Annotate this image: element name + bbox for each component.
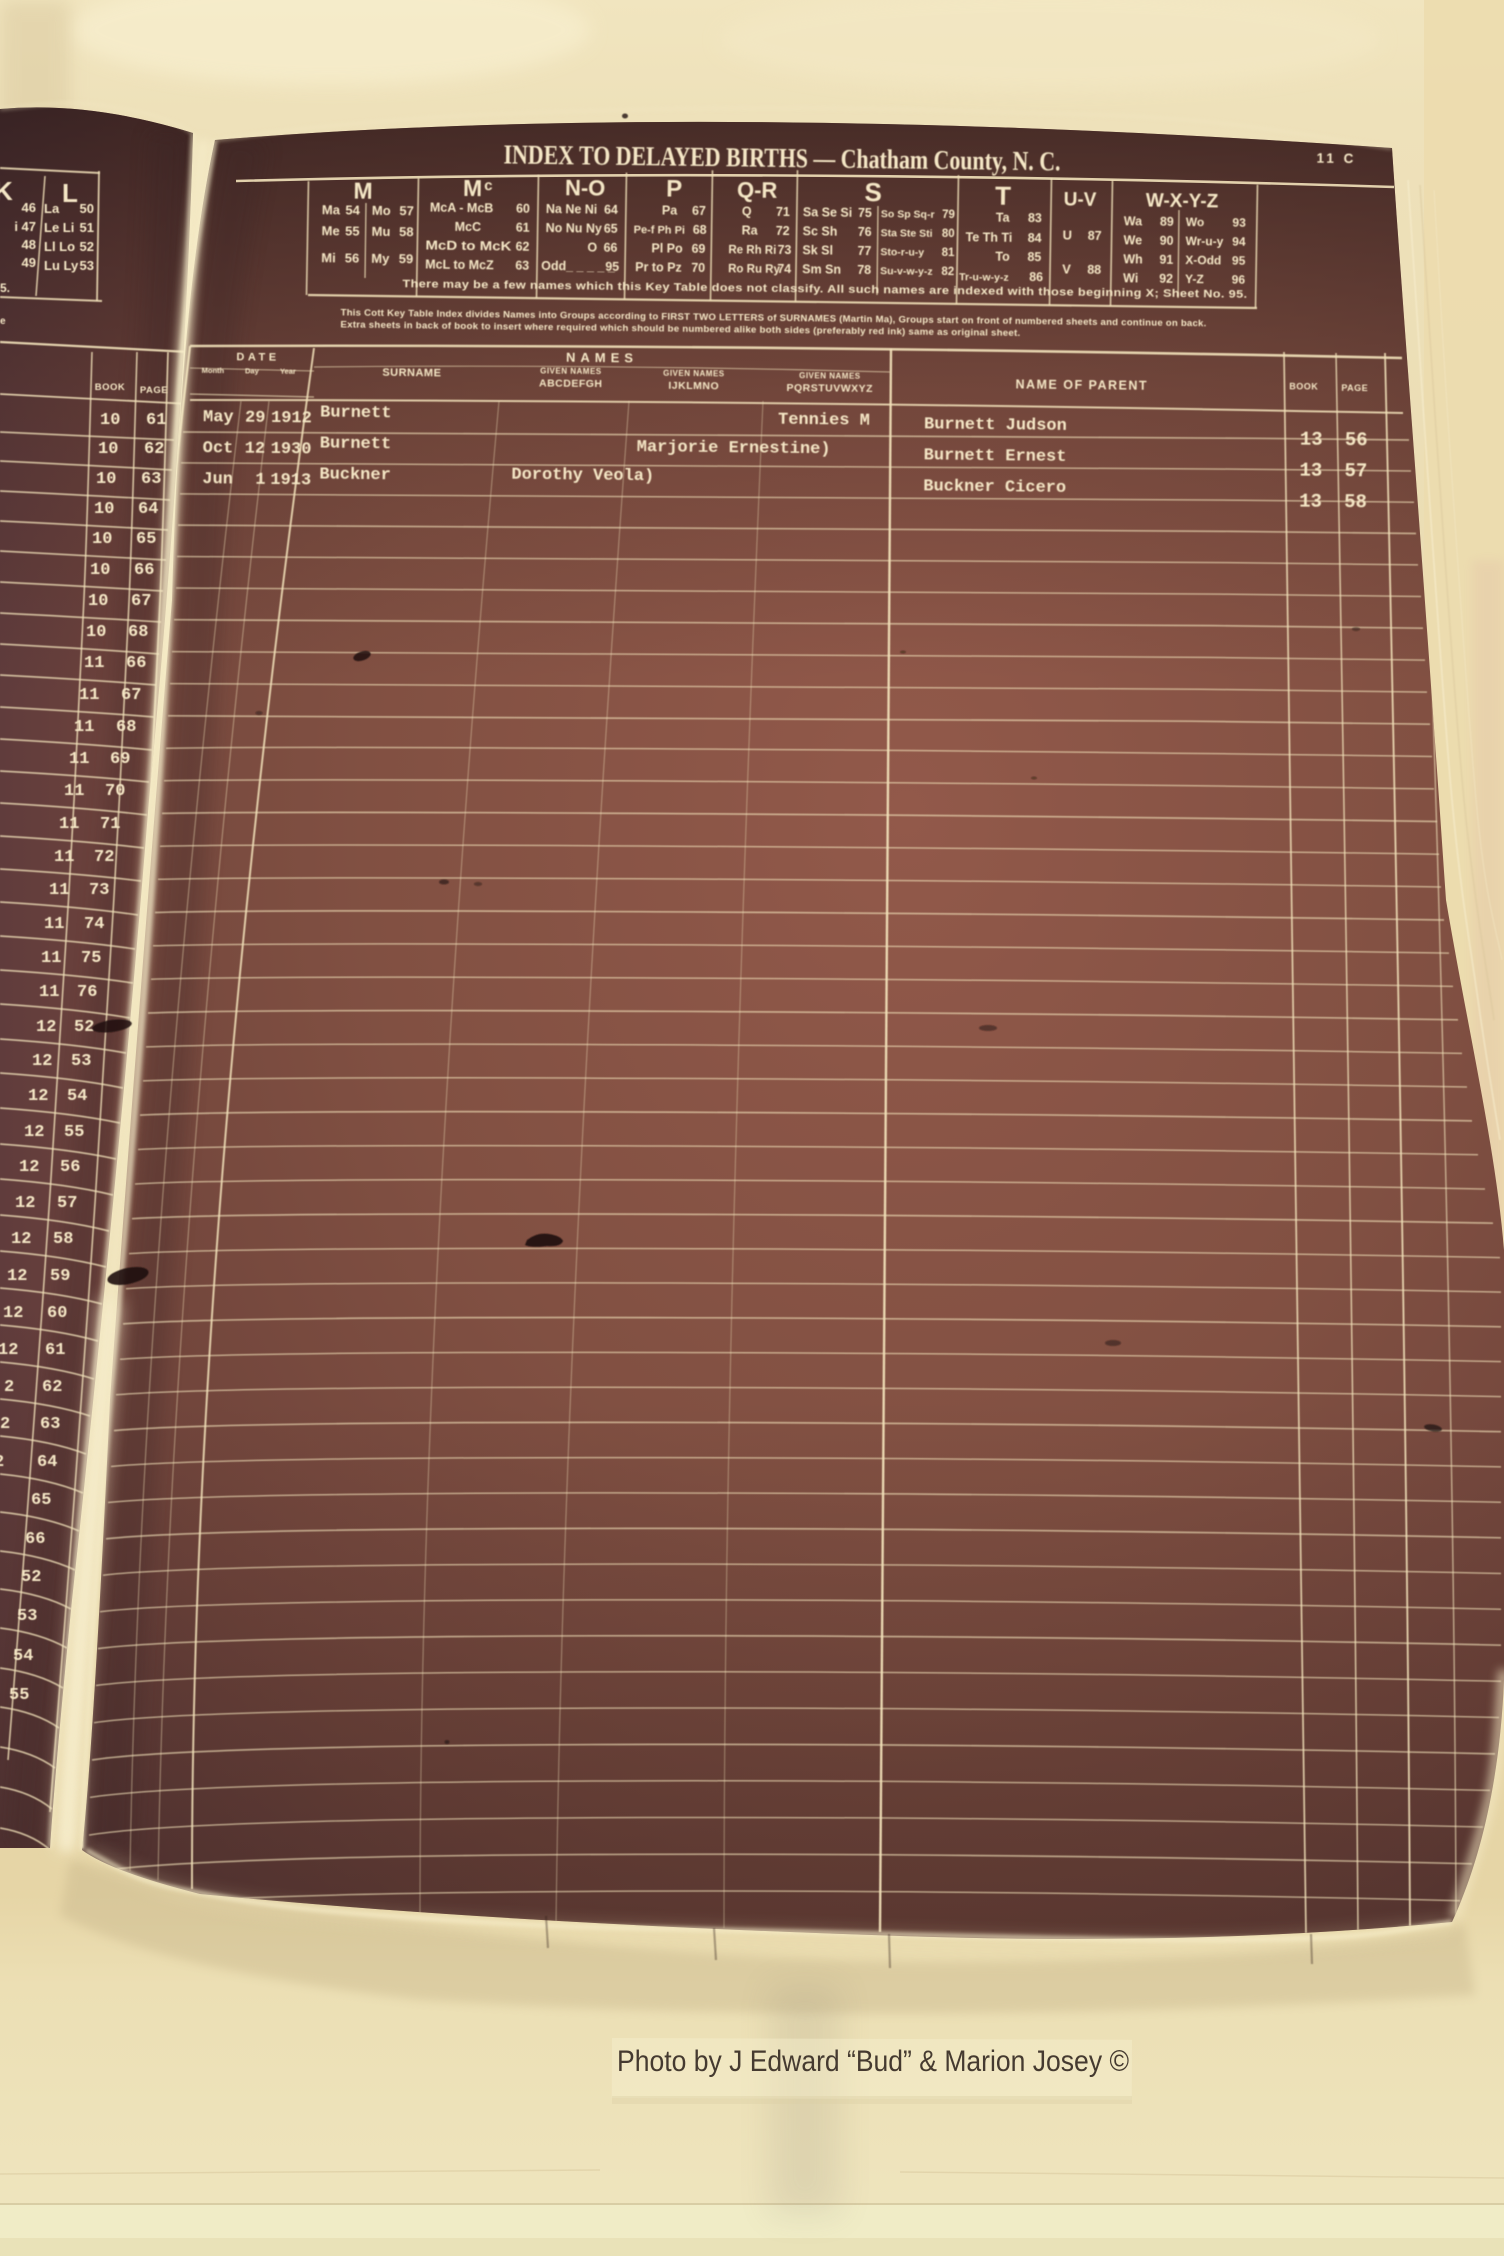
svg-text:53: 53 — [80, 258, 94, 273]
svg-text:Re Rh Ri: Re Rh Ri — [728, 244, 776, 257]
svg-text:M: M — [463, 175, 482, 201]
svg-text:X-Odd: X-Odd — [1185, 253, 1221, 267]
svg-text:62: 62 — [42, 1378, 62, 1397]
svg-text:Te Th Ti: Te Th Ti — [965, 230, 1012, 245]
svg-text:My: My — [371, 251, 390, 266]
svg-text:96: 96 — [1232, 273, 1246, 287]
svg-text:72: 72 — [776, 224, 790, 238]
svg-text:Pr to Pz: Pr to Pz — [635, 260, 682, 275]
svg-text:Sto-r-u-y: Sto-r-u-y — [880, 246, 924, 259]
svg-text:Y-Z: Y-Z — [1185, 272, 1204, 286]
svg-text:12: 12 — [245, 440, 266, 459]
svg-text:11: 11 — [39, 983, 59, 1002]
svg-text:11: 11 — [44, 915, 64, 934]
svg-text:W-X-Y-Z: W-X-Y-Z — [1146, 191, 1219, 213]
svg-text:10: 10 — [86, 623, 106, 642]
svg-text:55: 55 — [345, 223, 360, 238]
svg-text:10: 10 — [88, 592, 108, 611]
svg-text:61: 61 — [516, 221, 530, 235]
svg-text:63: 63 — [515, 259, 529, 273]
svg-text:NAME OF PARENT: NAME OF PARENT — [1015, 377, 1148, 392]
svg-text:95: 95 — [605, 260, 619, 274]
svg-text:12: 12 — [19, 1158, 39, 1177]
svg-text:2: 2 — [0, 1415, 10, 1434]
svg-text:10: 10 — [100, 411, 120, 430]
svg-text:Sa Se Si: Sa Se Si — [803, 205, 853, 220]
svg-text:5.: 5. — [0, 281, 10, 295]
svg-text:PQRSTUVWXYZ: PQRSTUVWXYZ — [786, 382, 873, 395]
svg-text:49: 49 — [22, 255, 36, 270]
svg-text:McA - McB: McA - McB — [430, 201, 494, 216]
svg-text:Wa: Wa — [1124, 214, 1144, 228]
svg-text:81: 81 — [942, 247, 956, 259]
svg-text:Buckner: Buckner — [319, 465, 391, 485]
svg-text:63: 63 — [141, 470, 161, 489]
svg-text:54: 54 — [13, 1647, 33, 1666]
svg-text:Le Li: Le Li — [44, 220, 74, 235]
svg-text:K: K — [0, 176, 13, 206]
svg-text:11: 11 — [74, 718, 94, 737]
svg-text:GIVEN NAMES: GIVEN NAMES — [540, 366, 602, 376]
svg-text:Lu Ly: Lu Ly — [44, 258, 79, 273]
svg-text:11: 11 — [64, 782, 84, 801]
svg-text:12: 12 — [11, 1230, 31, 1249]
svg-text:Q-R: Q-R — [737, 177, 778, 203]
svg-text:52: 52 — [21, 1568, 41, 1587]
svg-text:GIVEN NAMES: GIVEN NAMES — [799, 371, 861, 381]
svg-text:Pl Po: Pl Po — [651, 241, 683, 255]
svg-text:Photo by J Edward “Bud” & Mari: Photo by J Edward “Bud” & Marion Josey © — [617, 2045, 1129, 2078]
svg-text:Mi: Mi — [321, 250, 336, 265]
svg-text:Sm Sn: Sm Sn — [802, 262, 841, 276]
svg-text:Mo: Mo — [372, 203, 391, 218]
svg-text:Day: Day — [245, 366, 260, 375]
svg-text:95: 95 — [1232, 254, 1246, 268]
svg-text:10: 10 — [92, 530, 112, 549]
svg-text:71: 71 — [776, 205, 790, 219]
svg-text:11: 11 — [59, 815, 79, 834]
svg-text:69: 69 — [691, 242, 705, 256]
svg-text:68: 68 — [693, 223, 707, 237]
svg-text:60: 60 — [47, 1304, 67, 1323]
svg-text:82: 82 — [941, 266, 954, 278]
svg-text:Sc Sh: Sc Sh — [803, 224, 838, 238]
svg-text:10: 10 — [94, 500, 114, 519]
svg-text:Na Ne Ni: Na Ne Ni — [546, 202, 598, 217]
svg-text:78: 78 — [857, 263, 871, 277]
svg-text:DATE: DATE — [236, 351, 279, 363]
svg-text:11 C: 11 C — [1317, 151, 1357, 166]
svg-text:Marjorie Ernestine): Marjorie Ernestine) — [637, 438, 831, 459]
svg-text:Wh: Wh — [1123, 252, 1143, 266]
svg-text:1913: 1913 — [270, 471, 311, 490]
svg-text:L: L — [62, 178, 78, 208]
svg-text:Oct: Oct — [203, 439, 234, 458]
svg-text:12: 12 — [32, 1052, 52, 1071]
svg-text:12: 12 — [3, 1304, 23, 1323]
svg-text:84: 84 — [1028, 231, 1042, 245]
svg-text:10: 10 — [98, 440, 118, 459]
svg-text:1912: 1912 — [271, 409, 312, 428]
svg-text:50: 50 — [80, 201, 94, 216]
svg-text:51: 51 — [80, 220, 94, 235]
svg-text:So Sp Sq-r: So Sp Sq-r — [881, 208, 935, 221]
svg-text:56: 56 — [1345, 429, 1368, 451]
svg-text:Pa: Pa — [662, 203, 679, 217]
svg-text:77: 77 — [857, 244, 871, 258]
svg-text:Burnett Ernest: Burnett Ernest — [924, 446, 1067, 467]
svg-text:54: 54 — [67, 1087, 87, 1106]
svg-text:Jun: Jun — [202, 470, 233, 489]
svg-text:2: 2 — [0, 1453, 4, 1472]
svg-text:57: 57 — [1344, 460, 1367, 482]
svg-text:Q: Q — [742, 204, 752, 218]
svg-text:Burnett Judson: Burnett Judson — [924, 415, 1067, 436]
svg-text:52: 52 — [80, 239, 94, 254]
svg-text:58: 58 — [399, 224, 414, 239]
svg-text:80: 80 — [942, 228, 955, 240]
svg-text:Year: Year — [280, 367, 296, 376]
svg-text:46: 46 — [22, 200, 36, 215]
svg-text:68: 68 — [128, 623, 148, 642]
svg-text:Ll Lo: Ll Lo — [44, 239, 75, 254]
svg-text:56: 56 — [60, 1158, 80, 1177]
svg-text:76: 76 — [77, 983, 97, 1002]
svg-text:55: 55 — [9, 1686, 29, 1705]
svg-text:1930: 1930 — [271, 440, 312, 459]
svg-text:BOOK: BOOK — [95, 382, 126, 393]
svg-text:12: 12 — [0, 1341, 18, 1360]
svg-text:76: 76 — [858, 225, 872, 239]
svg-text:10: 10 — [90, 561, 110, 580]
svg-text:48: 48 — [22, 237, 36, 252]
svg-text:May: May — [203, 408, 234, 427]
svg-text:11: 11 — [69, 750, 89, 769]
svg-text:74: 74 — [84, 915, 104, 934]
svg-text:12: 12 — [15, 1194, 35, 1213]
svg-text:57: 57 — [399, 203, 414, 218]
svg-text:61: 61 — [45, 1341, 65, 1360]
svg-text:Tennies M: Tennies M — [778, 411, 870, 431]
svg-text:91: 91 — [1159, 253, 1173, 267]
svg-text:12: 12 — [24, 1123, 44, 1142]
svg-text:11: 11 — [41, 949, 61, 968]
svg-text:To: To — [995, 250, 1010, 264]
svg-text:75: 75 — [858, 206, 872, 220]
svg-text:SURNAME: SURNAME — [382, 367, 441, 380]
svg-text:66: 66 — [603, 241, 617, 255]
svg-text:Sk Sl: Sk Sl — [802, 243, 833, 257]
svg-text:69: 69 — [110, 750, 130, 769]
svg-text:11: 11 — [79, 686, 99, 705]
svg-text:N-O: N-O — [565, 175, 606, 201]
svg-text:V: V — [1062, 261, 1071, 276]
svg-text:Buckner Cicero: Buckner Cicero — [923, 477, 1066, 498]
svg-text:U-V: U-V — [1064, 189, 1097, 210]
svg-text:62: 62 — [144, 440, 164, 459]
svg-text:70: 70 — [105, 782, 125, 801]
svg-text:Wi: Wi — [1123, 271, 1138, 285]
svg-text:79: 79 — [942, 209, 955, 221]
svg-text:Burnett: Burnett — [320, 403, 392, 423]
svg-text:Burnett: Burnett — [320, 434, 392, 454]
svg-text:McC: McC — [455, 220, 482, 234]
svg-text:66: 66 — [126, 654, 146, 673]
svg-text:58: 58 — [1344, 491, 1367, 513]
svg-text:P: P — [666, 176, 682, 203]
svg-text:We: We — [1123, 233, 1142, 247]
svg-text:29: 29 — [245, 409, 266, 428]
svg-text:67: 67 — [131, 592, 151, 611]
svg-text:PAGE: PAGE — [1341, 383, 1368, 393]
svg-text:64: 64 — [138, 500, 158, 519]
svg-text:57: 57 — [57, 1194, 77, 1213]
svg-text:72: 72 — [94, 848, 114, 867]
svg-text:54: 54 — [345, 202, 360, 217]
svg-text:83: 83 — [1028, 211, 1042, 225]
svg-text:Mu: Mu — [372, 224, 391, 239]
svg-text:65: 65 — [604, 222, 618, 236]
svg-text:11: 11 — [54, 848, 74, 867]
svg-text:T: T — [995, 181, 1011, 211]
svg-text:56: 56 — [345, 250, 360, 265]
svg-text:58: 58 — [53, 1230, 73, 1249]
svg-text:12: 12 — [28, 1087, 48, 1106]
svg-text:53: 53 — [71, 1052, 91, 1071]
svg-text:1: 1 — [255, 471, 265, 490]
svg-text:94: 94 — [1232, 235, 1246, 249]
svg-text:88: 88 — [1087, 263, 1101, 277]
svg-text:McL to McZ: McL to McZ — [425, 257, 494, 272]
svg-text:2: 2 — [4, 1378, 14, 1397]
svg-text:Ro Ru Ry: Ro Ru Ry — [728, 263, 781, 276]
svg-text:12: 12 — [7, 1267, 27, 1286]
svg-text:75: 75 — [81, 949, 101, 968]
svg-text:65: 65 — [136, 530, 156, 549]
svg-text:U: U — [1063, 227, 1073, 242]
svg-text:53: 53 — [17, 1607, 37, 1626]
svg-text:11: 11 — [49, 881, 69, 900]
svg-text:67: 67 — [121, 686, 141, 705]
svg-text:McD to McK: McD to McK — [425, 238, 511, 253]
svg-text:87: 87 — [1088, 229, 1102, 243]
svg-text:Me: Me — [322, 223, 340, 238]
svg-text:92: 92 — [1159, 272, 1173, 286]
svg-text:63: 63 — [40, 1415, 60, 1434]
svg-text:NAMES: NAMES — [566, 350, 638, 366]
svg-text:60: 60 — [516, 202, 530, 216]
svg-text:55: 55 — [64, 1123, 84, 1142]
svg-text:73: 73 — [89, 881, 109, 900]
svg-text:Tr-u-w-y-z: Tr-u-w-y-z — [959, 271, 1009, 284]
svg-text:Month: Month — [202, 366, 225, 375]
svg-text:67: 67 — [692, 204, 706, 218]
svg-text:BOOK: BOOK — [1289, 381, 1318, 391]
svg-text:66: 66 — [25, 1530, 45, 1549]
svg-text:Sta Ste Sti: Sta Ste Sti — [881, 227, 933, 240]
svg-text:c: c — [484, 177, 493, 194]
svg-text:85: 85 — [1027, 250, 1041, 264]
svg-text:11: 11 — [84, 654, 104, 673]
svg-text:66: 66 — [134, 561, 154, 580]
svg-text:65: 65 — [31, 1491, 51, 1510]
svg-text:Ta: Ta — [996, 211, 1011, 225]
svg-text:M: M — [353, 178, 372, 204]
svg-text:71: 71 — [100, 815, 120, 834]
svg-text:Wr-u-y: Wr-u-y — [1185, 234, 1223, 248]
svg-text:70: 70 — [691, 261, 705, 275]
svg-text:68: 68 — [116, 718, 136, 737]
svg-text:61: 61 — [146, 411, 166, 430]
svg-text:86: 86 — [1029, 270, 1043, 284]
svg-text:13: 13 — [1299, 460, 1322, 482]
svg-text:73: 73 — [777, 243, 791, 257]
svg-text:59: 59 — [50, 1267, 70, 1286]
svg-text:13: 13 — [1300, 429, 1323, 451]
svg-text:64: 64 — [604, 203, 618, 217]
svg-text:59: 59 — [399, 251, 414, 266]
svg-text:Pe-f Ph Pi: Pe-f Ph Pi — [634, 224, 685, 237]
svg-text:62: 62 — [515, 240, 529, 254]
svg-text:S: S — [864, 177, 882, 207]
svg-text:ABCDEFGH: ABCDEFGH — [539, 377, 603, 390]
svg-text:No Nu Ny: No Nu Ny — [546, 221, 602, 236]
svg-text:52: 52 — [74, 1018, 94, 1037]
svg-text:Ma: Ma — [322, 202, 341, 217]
svg-text:74: 74 — [777, 262, 791, 276]
svg-text:e: e — [0, 316, 6, 327]
svg-text:89: 89 — [1160, 215, 1174, 229]
svg-text:i 47: i 47 — [14, 219, 36, 234]
svg-text:IJKLMNO: IJKLMNO — [668, 380, 719, 393]
svg-text:Wo: Wo — [1186, 215, 1205, 229]
svg-text:La: La — [44, 201, 60, 216]
svg-text:PAGE: PAGE — [140, 385, 168, 396]
svg-text:Su-v-w-y-z: Su-v-w-y-z — [880, 265, 933, 278]
svg-text:Ra: Ra — [742, 223, 759, 237]
svg-text:O: O — [587, 241, 597, 255]
svg-text:93: 93 — [1232, 216, 1246, 230]
svg-text:90: 90 — [1160, 234, 1174, 248]
svg-text:GIVEN NAMES: GIVEN NAMES — [663, 369, 725, 379]
svg-text:13: 13 — [1299, 491, 1322, 513]
svg-text:10: 10 — [96, 470, 116, 489]
svg-text:12: 12 — [36, 1018, 56, 1037]
svg-text:Dorothy Veola): Dorothy Veola) — [511, 466, 654, 487]
svg-text:64: 64 — [37, 1453, 57, 1472]
